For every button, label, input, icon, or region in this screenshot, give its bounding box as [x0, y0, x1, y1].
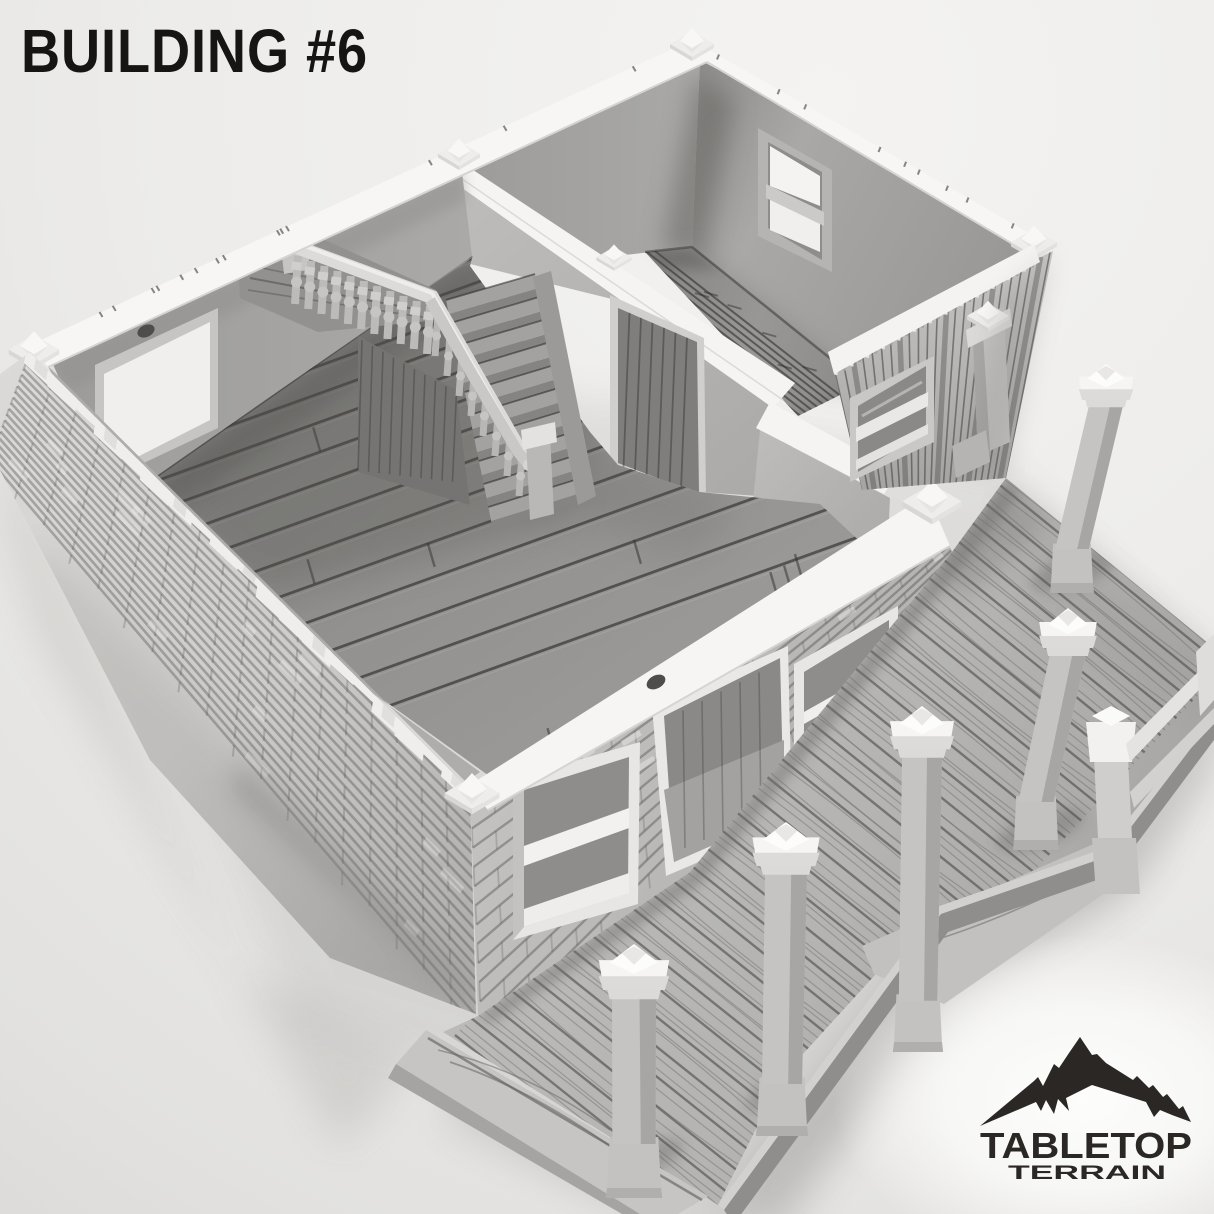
- svg-text:BUILDING #6: BUILDING #6: [21, 17, 368, 85]
- svg-text:TABLETOP: TABLETOP: [980, 1125, 1192, 1166]
- svg-text:TERRAIN: TERRAIN: [1008, 1162, 1166, 1184]
